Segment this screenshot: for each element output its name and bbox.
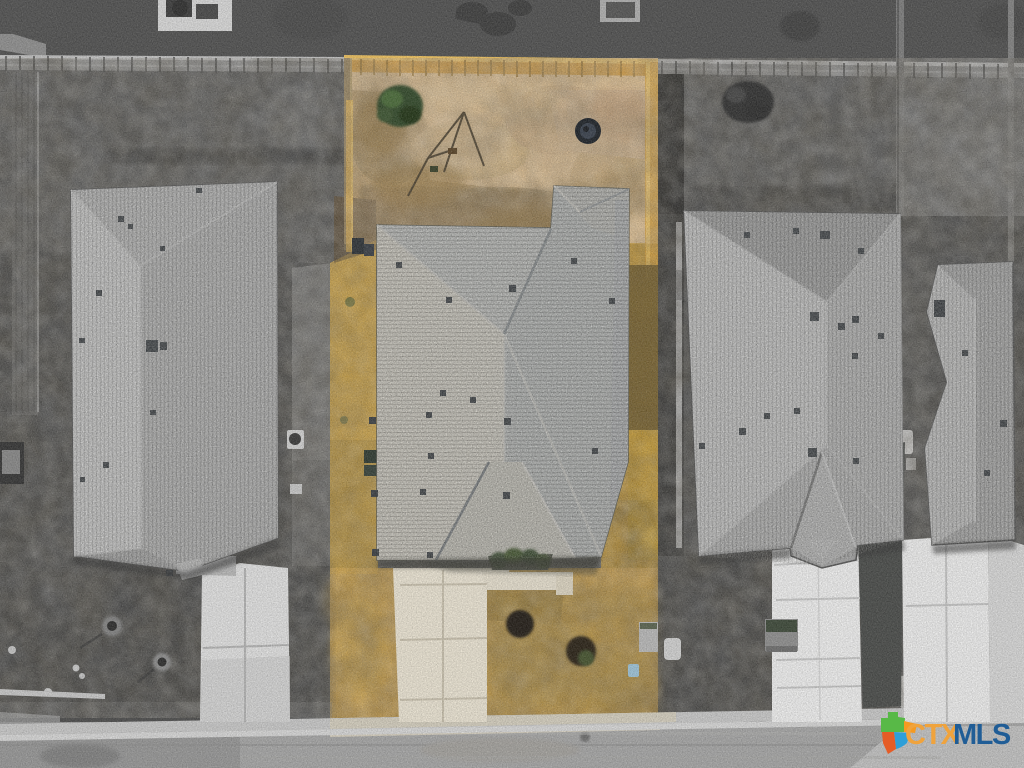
svg-text:MLS: MLS — [953, 719, 1011, 751]
